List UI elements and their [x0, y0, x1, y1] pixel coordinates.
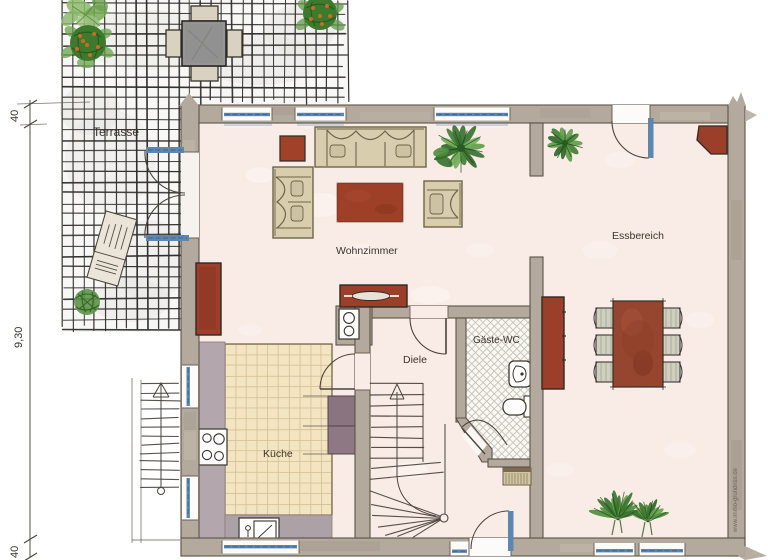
- svg-text:Diele: Diele: [403, 354, 427, 366]
- svg-text:Wohnzimmer: Wohnzimmer: [336, 245, 398, 257]
- svg-text:Essbereich: Essbereich: [612, 230, 664, 242]
- svg-text:Terrasse: Terrasse: [93, 125, 139, 139]
- svg-text:Küche: Küche: [263, 448, 293, 460]
- svg-text:9,30: 9,30: [13, 327, 25, 348]
- svg-text:Gäste-WC: Gäste-WC: [473, 335, 520, 346]
- svg-text:40: 40: [9, 110, 21, 122]
- svg-text:40: 40: [9, 546, 21, 558]
- svg-text:www.immo-grundriss.de: www.immo-grundriss.de: [733, 467, 739, 533]
